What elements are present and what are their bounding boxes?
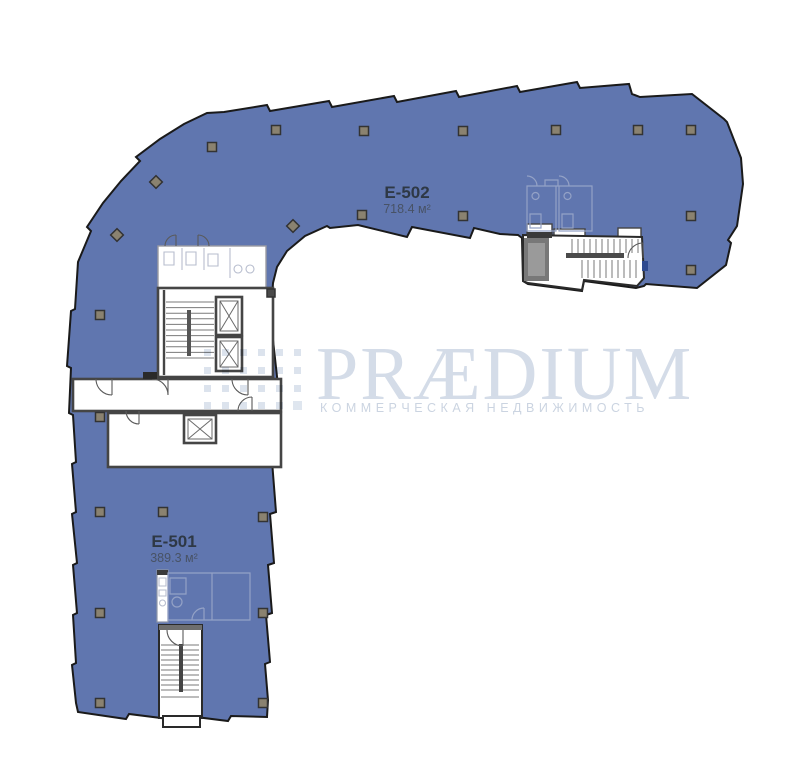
- praedium-tagline: КОММЕРЧЕСКАЯ НЕДВИЖИМОСТЬ: [320, 401, 649, 415]
- wall-device: [642, 261, 648, 271]
- floor-plan-canvas: E-502 718.4 м² E-501 389.3 м² PRÆDIUM КО…: [0, 0, 810, 768]
- unit-e501-id[interactable]: E-501: [151, 532, 196, 551]
- praedium-watermark: PRÆDIUM КОММЕРЧЕСКАЯ НЕДВИЖИМОСТЬ: [204, 332, 693, 416]
- unit-e502-label[interactable]: E-502 718.4 м²: [383, 183, 431, 216]
- unit-e501-label[interactable]: E-501 389.3 м²: [150, 532, 198, 565]
- core-corridor: [73, 379, 281, 411]
- unit-e502-area: 718.4 м²: [383, 202, 431, 216]
- wall-device: [143, 372, 157, 379]
- unit-e501-area: 389.3 м²: [150, 551, 198, 565]
- unit-e502-id[interactable]: E-502: [384, 183, 429, 202]
- floor-plan-page: E-502 718.4 м² E-501 389.3 м² PRÆDIUM КО…: [0, 0, 810, 768]
